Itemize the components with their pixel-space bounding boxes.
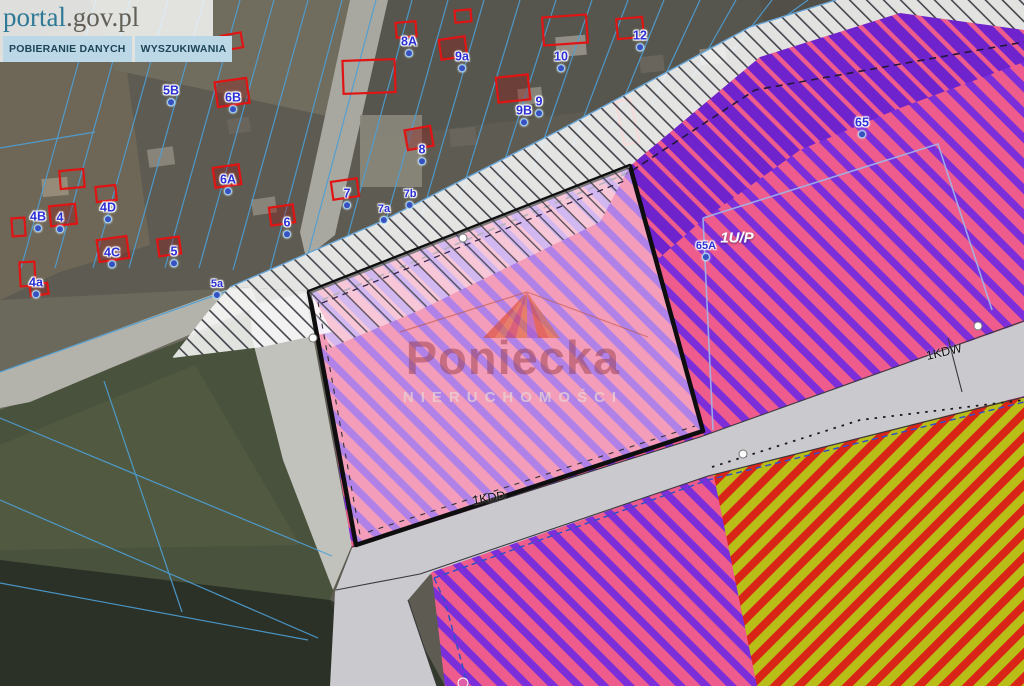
tab-wyszukiwania[interactable]: WYSZUKIWANIA [135,36,233,62]
site-logo[interactable]: portal.gov.pl [0,0,213,32]
geoportal-app: 4B44D4C4a55a5B6B6A677a7b88A9a9B910126565… [0,0,1024,686]
map-viewport[interactable] [0,0,1024,686]
logo-prefix: portal [3,2,66,32]
logo-suffix: .gov.pl [66,2,139,32]
tab-bar: POBIERANIE DANYCH WYSZUKIWANIA [0,36,213,62]
header: portal.gov.pl POBIERANIE DANYCH WYSZUKIW… [0,0,213,62]
tab-pobieranie-danych[interactable]: POBIERANIE DANYCH [3,36,132,62]
